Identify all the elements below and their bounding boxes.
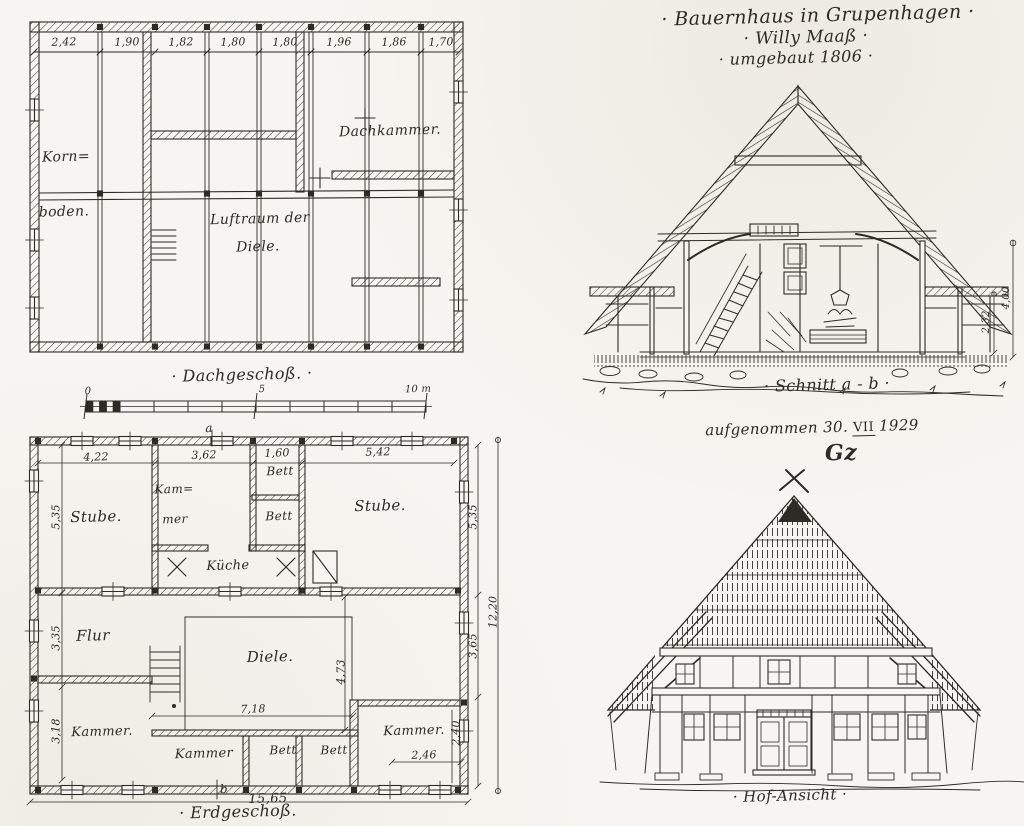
room-label-kammer-top-1: Kam=	[154, 482, 193, 495]
ground-dim-left-3: 3,18	[51, 718, 62, 743]
section-marker-a: a	[205, 422, 213, 434]
attic-plan-drawing	[26, 22, 468, 352]
sheet-title-year: · umgebaut 1806 ·	[718, 48, 873, 68]
section-caption: · Schnitt a - b ·	[764, 375, 890, 394]
room-label-kueche: Küche	[206, 559, 249, 573]
linework-svg	[0, 0, 1024, 826]
ground-dim-top-1: 4,22	[83, 451, 109, 463]
ground-dim-left-1: 5,35	[51, 504, 62, 529]
ground-dim-left-2: 3,35	[51, 625, 62, 650]
room-label-stube-right: Stube.	[354, 498, 406, 514]
room-label-flur: Flur	[76, 628, 110, 644]
attic-plan-caption: · Dachgeschoß. ·	[171, 365, 312, 385]
attic-dim-4: 1,80	[220, 36, 246, 48]
room-label-bett-upper: Bett	[266, 465, 293, 478]
entrance-door	[753, 710, 815, 775]
kettle-and-fire	[810, 246, 866, 343]
room-label-dachkammer: Dachkammer.	[339, 123, 441, 140]
attic-dim-3: 1,82	[168, 36, 194, 48]
room-label-kammer-top-2: mer	[162, 513, 188, 526]
survey-note-month: VII	[852, 420, 875, 437]
room-label-kammer-bottom: Kammer	[175, 747, 234, 762]
room-label-diele: Diele.	[247, 649, 294, 665]
room-label-luftraum-2: Diele.	[236, 239, 280, 254]
drawing-sheet: · Bauernhaus in Grupenhagen · · Willy Ma…	[0, 0, 1024, 826]
ground-stair-symbol	[150, 646, 180, 708]
attic-stair-symbol	[152, 230, 176, 260]
attic-dim-7: 1,86	[381, 36, 407, 48]
ground-plan-caption: · Erdgeschoß.	[179, 802, 297, 821]
attic-dim-8: 1,70	[428, 36, 454, 48]
section-stair	[696, 254, 762, 356]
room-label-stube-left: Stube.	[70, 509, 122, 525]
scale-zero-label: 0	[85, 387, 92, 397]
room-label-bett-bottom-1: Bett	[269, 744, 296, 757]
scale-ten-label: 10 m	[405, 385, 431, 396]
room-label-kammer-right: Kammer.	[383, 724, 445, 739]
room-label-bett-bottom-2: Bett	[320, 744, 347, 757]
attic-dim-1: 2,42	[51, 36, 77, 48]
ground-dim-diele-width: 7,18	[240, 703, 266, 715]
sheet-title-owner: · Willy Maaß ·	[743, 28, 868, 48]
section-drawing	[583, 86, 1016, 398]
scale-five-label: 5	[259, 385, 266, 395]
survey-note-prefix: aufgenommen 30.	[705, 418, 848, 440]
attic-dim-6: 1,96	[326, 36, 352, 48]
attic-dim-2: 1,90	[114, 36, 140, 48]
ground-dim-right-3: 2,40	[451, 720, 462, 745]
ground-dim-overall-height: 12,20	[488, 596, 499, 629]
section-marker-b: b	[220, 783, 228, 795]
surveyor-monogram: Gz	[825, 442, 858, 465]
room-label-bett-lower: Bett	[265, 510, 292, 523]
room-label-kornboden-2: boden.	[39, 204, 90, 219]
scale-bar-drawing	[80, 393, 432, 419]
ground-dim-kammer-width: 2,46	[411, 749, 437, 761]
ground-dim-right-2: 3,65	[468, 633, 479, 658]
room-label-luftraum-1: Luftraum der	[210, 211, 310, 228]
room-label-kammer-left: Kammer.	[71, 725, 133, 740]
elevation-caption: · Hof-Ansicht ·	[733, 787, 848, 805]
ground-dim-right-1: 5,35	[468, 504, 479, 529]
elevation-drawing	[600, 470, 1024, 791]
survey-note-year: 1929	[879, 416, 919, 435]
ground-dim-diele-height: 4,73	[336, 659, 347, 684]
section-dim-storey: 2,32	[982, 310, 992, 333]
section-dim-total: 4,00	[1002, 286, 1012, 309]
room-label-kornboden-1: Korn=	[42, 149, 90, 164]
ground-dim-top-2: 3,62	[191, 449, 217, 461]
ground-dim-top-3: 1,60	[264, 447, 290, 459]
ground-dim-top-4: 5,42	[365, 446, 391, 458]
attic-dim-5: 1,80	[272, 36, 298, 48]
